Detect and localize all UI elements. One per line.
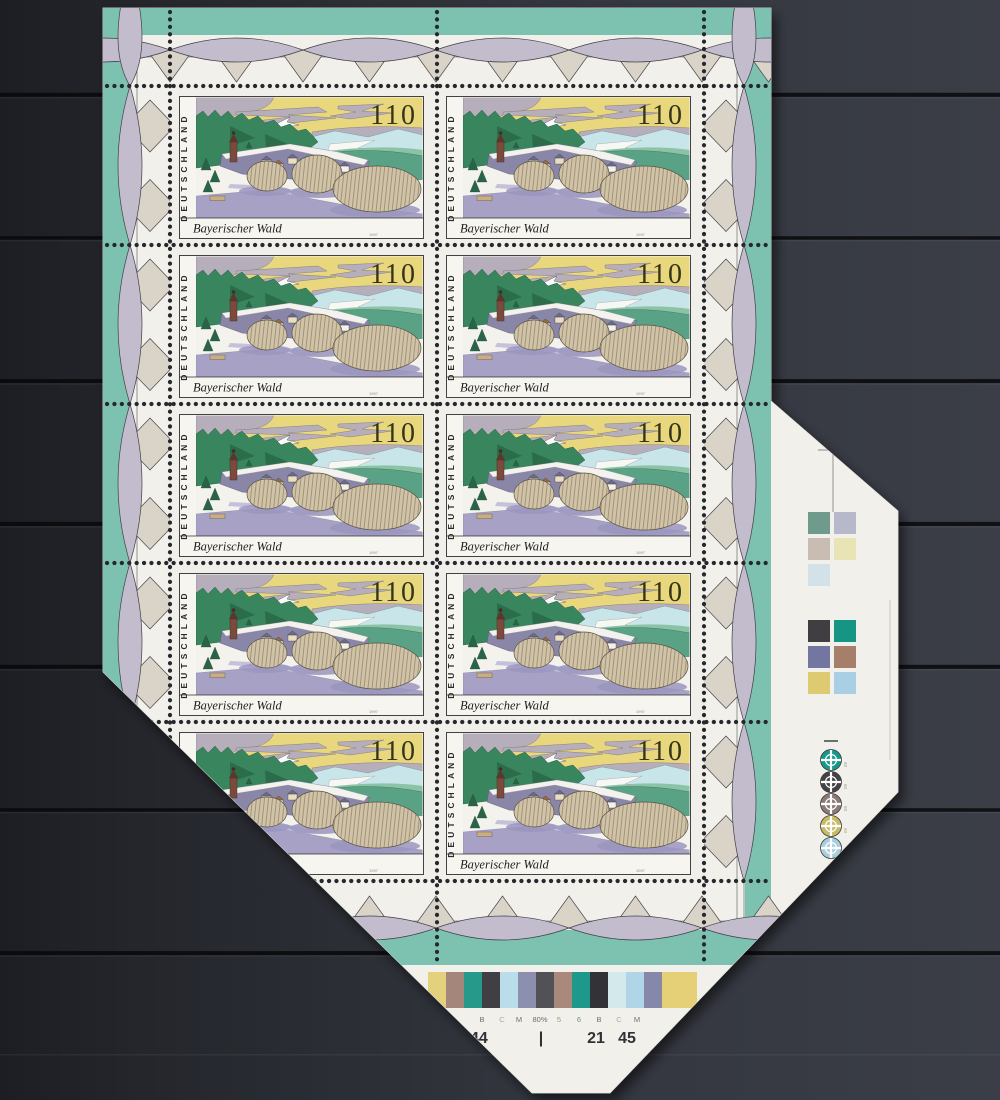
- swatch: [808, 620, 830, 642]
- color-bar-patch: [590, 972, 608, 1008]
- color-bar-patch: [554, 972, 572, 1008]
- color-bar-patch: [446, 972, 464, 1008]
- stamp-r2c2: [437, 245, 704, 404]
- color-bar-patch: [518, 972, 536, 1008]
- stamp-sheet: 60 60 60 60: [37, 0, 890, 1047]
- swatch: [834, 672, 856, 694]
- svg-text:60: 60: [843, 850, 848, 856]
- svg-text:60: 60: [843, 806, 848, 812]
- stamp-r1c1: [170, 86, 437, 245]
- svg-text:5: 5: [557, 1015, 561, 1024]
- svg-text:80%: 80%: [532, 1015, 547, 1024]
- swatch: [834, 538, 856, 560]
- color-bar-patch: [428, 972, 446, 1008]
- svg-text:60: 60: [843, 828, 848, 834]
- stockbook-page: 110 DEUTSCHLAND Bayerischer Wald 1997: [0, 0, 1000, 1100]
- svg-text:C: C: [616, 1015, 622, 1024]
- color-bar-patch: [662, 972, 697, 1008]
- stamp-r5c1: [170, 722, 437, 881]
- swatch: [808, 564, 830, 586]
- color-bar-labels: B C M 80% 5 6 B C M: [479, 1015, 640, 1024]
- swatch: [834, 512, 856, 534]
- swatch: [808, 646, 830, 668]
- color-bar-patch: [608, 972, 626, 1008]
- stamp-r1c2: [437, 86, 704, 245]
- color-bar-patch: [572, 972, 590, 1008]
- color-control-bar: [428, 972, 697, 1008]
- stamp-r2c1: [170, 245, 437, 404]
- svg-text:45: 45: [618, 1030, 636, 1047]
- stamp-r3c2: [437, 404, 704, 563]
- svg-text:6: 6: [577, 1015, 581, 1024]
- svg-text:M: M: [516, 1015, 522, 1024]
- swatch: [808, 672, 830, 694]
- color-bar-patch: [500, 972, 518, 1008]
- stamp-r4c2: [437, 563, 704, 722]
- color-bar-patch: [644, 972, 662, 1008]
- stamp-sheet-photo: 110 DEUTSCHLAND Bayerischer Wald 1997: [0, 0, 1000, 1100]
- swatch: [808, 512, 830, 534]
- svg-text:B: B: [479, 1015, 484, 1024]
- stamp-r3c1: [170, 404, 437, 563]
- stamp-r5c2: [437, 722, 704, 881]
- swatch: [834, 620, 856, 642]
- svg-text:|: |: [539, 1030, 543, 1047]
- stamp-r4c1: [170, 563, 437, 722]
- swatch: [808, 538, 830, 560]
- color-bar-patch: [536, 972, 554, 1008]
- color-bar-patch: [482, 972, 500, 1008]
- swatch: [834, 646, 856, 668]
- svg-text:60: 60: [843, 762, 848, 768]
- svg-text:44: 44: [470, 1030, 488, 1047]
- color-bar-patch: [464, 972, 482, 1008]
- color-bar-patch: [626, 972, 644, 1008]
- svg-text:C: C: [499, 1015, 505, 1024]
- svg-text:21: 21: [587, 1030, 605, 1047]
- svg-text:M: M: [634, 1015, 640, 1024]
- svg-text:B: B: [596, 1015, 601, 1024]
- svg-text:60: 60: [843, 784, 848, 790]
